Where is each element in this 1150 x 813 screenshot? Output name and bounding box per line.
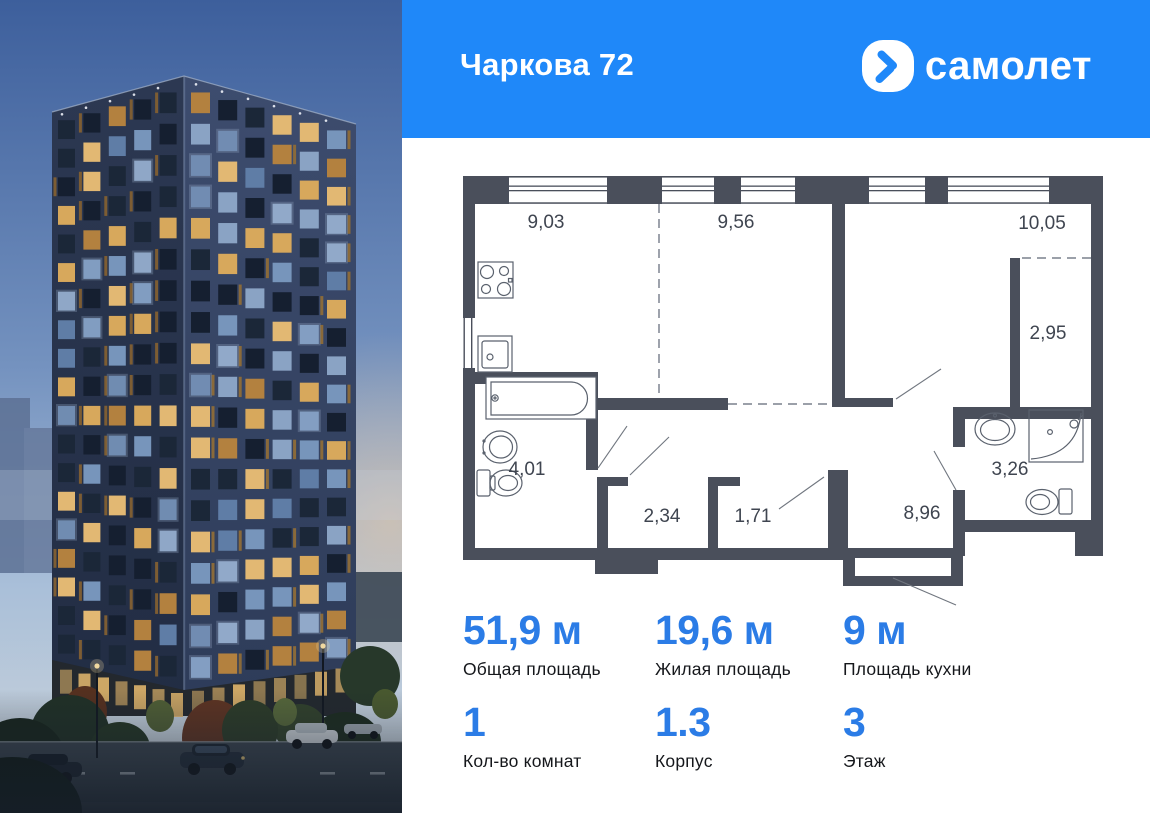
building-photo [0, 0, 402, 813]
stat-kitchen-area: 9 м Площадь кухни [843, 610, 1033, 680]
plan-dashed-lines [659, 204, 1091, 404]
stat-label: Кол-во комнат [463, 751, 653, 772]
room-labels: 9,03 9,56 10,05 2,95 4,01 2,34 1,71 8,96… [509, 212, 1067, 527]
building-photo-art [0, 0, 402, 813]
bathtub-icon [486, 377, 596, 419]
stat-label: Корпус [655, 751, 845, 772]
room-label: 9,56 [718, 212, 755, 233]
room-label: 9,03 [528, 212, 565, 233]
foreground-shade [0, 690, 402, 813]
room-label: 2,34 [644, 506, 681, 527]
room-label: 1,71 [735, 506, 772, 527]
wc-toilet-icon [1026, 489, 1072, 515]
room-label: 4,01 [509, 459, 546, 480]
stat-value: 9 м [843, 610, 1033, 651]
stat-total-area: 51,9 м Общая площадь [463, 610, 653, 680]
fence [356, 572, 402, 642]
room-label: 3,26 [992, 459, 1029, 480]
stat-value: 1.3 [655, 702, 845, 743]
stat-label: Жилая площадь [655, 659, 845, 680]
apartment-flyer: Чаркова 72 самолет [0, 0, 1150, 813]
stat-living-area: 19,6 м Жилая площадь [655, 610, 845, 680]
stove-icon [478, 262, 513, 298]
stat-value: 19,6 м [655, 610, 845, 651]
kitchen-sink-icon [478, 336, 512, 372]
stat-floor: 3 Этаж [843, 702, 1033, 772]
room-label: 8,96 [904, 503, 941, 524]
stat-value: 3 [843, 702, 1033, 743]
stat-value: 51,9 м [463, 610, 653, 651]
floor-plan: 9,03 9,56 10,05 2,95 4,01 2,34 1,71 8,96… [402, 0, 1150, 813]
stat-building: 1.3 Корпус [655, 702, 845, 772]
room-label: 2,95 [1030, 323, 1067, 344]
room-label: 10,05 [1018, 213, 1066, 234]
stat-rooms: 1 Кол-во комнат [463, 702, 653, 772]
stat-value: 1 [463, 702, 653, 743]
info-panel: Чаркова 72 самолет [402, 0, 1150, 813]
stat-label: Этаж [843, 751, 1033, 772]
stat-label: Площадь кухни [843, 659, 1033, 680]
stat-label: Общая площадь [463, 659, 653, 680]
